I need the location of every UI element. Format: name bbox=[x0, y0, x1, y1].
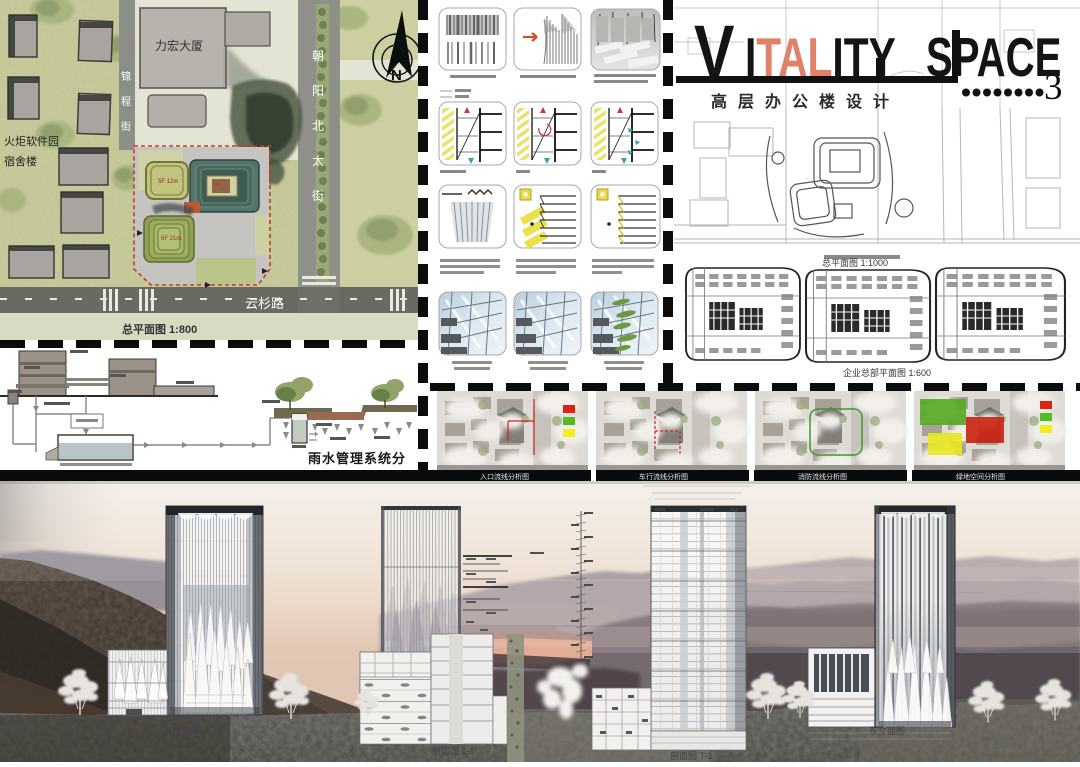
svg-text:云杉路: 云杉路 bbox=[245, 296, 284, 311]
svg-text:剖面图 1-1: 剖面图 1-1 bbox=[432, 745, 475, 756]
svg-text:总平面图 1:800: 总平面图 1:800 bbox=[122, 322, 197, 336]
svg-text:力宏大厦: 力宏大厦 bbox=[155, 38, 203, 53]
svg-text:锦: 锦 bbox=[121, 70, 131, 83]
svg-text:5F 12m: 5F 12m bbox=[158, 179, 178, 185]
svg-text:程: 程 bbox=[121, 96, 131, 108]
svg-text:剖面图 T-1: 剖面图 T-1 bbox=[670, 750, 713, 761]
svg-text:宿舍楼: 宿舍楼 bbox=[4, 154, 37, 168]
svg-text:太: 太 bbox=[312, 153, 324, 168]
svg-text:阳: 阳 bbox=[312, 84, 324, 98]
svg-text:东立面图: 东立面图 bbox=[869, 725, 905, 736]
svg-text:16F: 16F bbox=[213, 182, 222, 188]
svg-text:6F 21m: 6F 21m bbox=[161, 236, 181, 242]
svg-text:街: 街 bbox=[121, 120, 131, 133]
svg-text:火炬软件园: 火炬软件园 bbox=[4, 134, 59, 148]
svg-text:南立面图: 南立面图 bbox=[163, 725, 199, 736]
svg-text:北: 北 bbox=[312, 119, 324, 133]
svg-text:朝: 朝 bbox=[312, 49, 324, 63]
svg-text:街: 街 bbox=[312, 189, 324, 203]
svg-text:N: N bbox=[391, 67, 402, 84]
